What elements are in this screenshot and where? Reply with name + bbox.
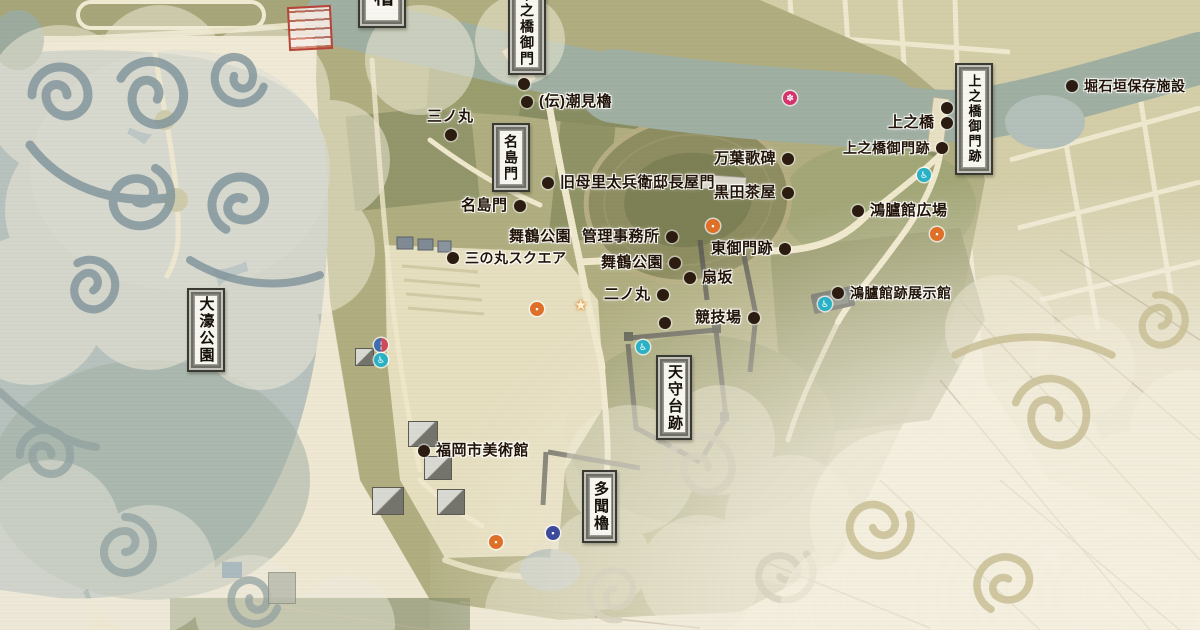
restroom-icon: ¦ (374, 338, 388, 352)
poi-label: 競技場 (695, 309, 742, 327)
poi-maizuru-koen-1: 舞鶴公園 (509, 228, 571, 246)
small-roof (355, 348, 374, 366)
poi-label: 堀石垣保存施設 (1084, 77, 1186, 95)
plaque-tamon-yagura: 多聞櫓 (582, 470, 617, 543)
marker-dot (514, 200, 526, 212)
poi-orange-icon: ▪ (489, 535, 503, 549)
poi-higashi-gomon-ato: 東御門跡 (711, 240, 791, 258)
poi-sannomaru: 三ノ丸 (427, 108, 474, 126)
plaque-shiomi-yagura: 潮見櫓 (358, 0, 406, 28)
poi-sannomaru-square: 三の丸スクエア (447, 249, 567, 267)
poi-kuroda-chaya: 黒田茶屋 (714, 184, 794, 202)
marker-dot (518, 78, 530, 90)
poi-fukuoka-bijutsukan: 福岡市美術館 (418, 442, 529, 460)
marker-dot (445, 129, 457, 141)
small-building (268, 572, 296, 604)
poi-label: 扇坂 (702, 269, 733, 287)
wheelchair-icon: ♿ (917, 168, 931, 182)
marker-dot (684, 272, 696, 284)
poi-kyogijo: 競技場 (695, 309, 760, 327)
poi-label: 舞鶴公園 (509, 228, 571, 246)
small-building (222, 562, 242, 578)
poi-najima-mon: 名島門 (461, 197, 526, 215)
poi-orange-icon: ▪ (706, 219, 720, 233)
poi-korokan-hiroba: 鴻臚館広場 (852, 202, 948, 220)
poi-label: 福岡市美術館 (436, 442, 529, 460)
poi-label: 万葉歌碑 (714, 150, 776, 168)
plaque-text: 天守台跡 (663, 362, 686, 433)
poi-label: 名島門 (461, 197, 508, 215)
poi-den-shiomi-yagura: (伝)潮見櫓 (521, 93, 612, 111)
marker-dot (657, 289, 669, 301)
marker-dot (1066, 80, 1078, 92)
poi-label: 三の丸スクエア (465, 249, 567, 267)
marker-dot (782, 187, 794, 199)
poi-ninomaru: 二ノ丸 (604, 286, 669, 304)
poi-kyu-mori-nagayamon: 旧母里太兵衛邸長屋門 (542, 174, 715, 192)
plaque-tenshudai-ato: 天守台跡 (656, 355, 692, 440)
icon-glyph: ★ (574, 297, 587, 314)
icon-glyph: ▪ (535, 305, 538, 314)
icon-glyph: ♿ (920, 171, 928, 180)
marker-dot (832, 287, 844, 299)
marker-dot (666, 231, 678, 243)
poi-maizuru-koen-2: 舞鶴公園 (601, 254, 681, 272)
icon-glyph: ♿ (639, 343, 647, 352)
poi-label: 上之橋御門跡 (843, 139, 930, 157)
shrine-building (287, 5, 333, 51)
plaque-shimonohashi-gomon: 下之橋御門 (508, 0, 546, 75)
wheelchair-icon: ♿ (374, 353, 388, 367)
poi-label: 旧母里太兵衛邸長屋門 (560, 174, 715, 192)
marker-dot (748, 312, 760, 324)
marker-dot (936, 142, 948, 154)
poi-label: 鴻臚館広場 (870, 202, 948, 220)
park-map: 潮見櫓 下之橋御門 名島門 上之橋御門跡 大濠公園 天守台跡 多聞櫓 (伝)潮見… (0, 0, 1200, 630)
poi-kaminohashi-gomon-ato: 上之橋御門跡 (843, 139, 948, 157)
wheelchair-icon: ♿ (818, 297, 832, 311)
icon-glyph: ♿ (821, 300, 829, 309)
plaque-text: 潮見櫓 (365, 0, 399, 21)
plaque-najima-mon: 名島門 (492, 123, 530, 192)
poi-label: 鴻臚館跡展示館 (850, 284, 952, 302)
plaque-text: 名島門 (499, 130, 523, 185)
poi-orange-icon: ▪ (530, 302, 544, 316)
museum-roof (372, 487, 404, 515)
marker-dot (779, 243, 791, 255)
poi-kanri-jimusho: 管理事務所 (582, 228, 678, 246)
marker-dot (941, 117, 953, 129)
poi-orange-icon: ▪ (930, 227, 944, 241)
icon-glyph: ♿ (377, 356, 385, 365)
icon-glyph: ▪ (935, 230, 938, 239)
poi-hori-ishigaki: 堀石垣保存施設 (1066, 77, 1186, 95)
poi-label: 管理事務所 (582, 228, 660, 246)
marker-dot (418, 445, 430, 457)
marker-dot (941, 102, 953, 114)
icon-glyph: ▪ (711, 222, 714, 231)
marker-dot (521, 96, 533, 108)
poi-ogizaka: 扇坂 (684, 269, 733, 287)
poi-label: 上之橋 (888, 114, 935, 132)
poi-blue-icon: ▪ (546, 526, 560, 540)
museum-roof (437, 489, 465, 515)
cherry-blossom-icon: ✽ (783, 91, 797, 105)
poi-label: (伝)潮見櫓 (539, 93, 612, 111)
plaque-ohori-koen: 大濠公園 (187, 288, 225, 372)
star-icon: ★ (574, 296, 587, 314)
poi-label: 舞鶴公園 (601, 254, 663, 272)
plaque-text: 下之橋御門 (515, 0, 539, 68)
plaque-text: 上之橋御門跡 (962, 70, 986, 168)
icon-glyph: ▪ (551, 529, 554, 538)
poi-korokan-tenjikan: 鴻臚館跡展示館 (832, 284, 952, 302)
marker-dot (659, 317, 671, 329)
plaque-text: 多聞櫓 (589, 477, 612, 536)
poi-kaminohashi: 上之橋 (888, 114, 953, 132)
marker-dot (782, 153, 794, 165)
wheelchair-icon: ♿ (636, 340, 650, 354)
marker-dot (669, 257, 681, 269)
icon-glyph: ▪ (494, 538, 497, 547)
icon-glyph: ¦ (380, 341, 382, 350)
poi-label: 二ノ丸 (604, 286, 651, 304)
marker-dot (852, 205, 864, 217)
poi-label: 三ノ丸 (427, 108, 474, 126)
poi-manyo-kahi: 万葉歌碑 (714, 150, 794, 168)
marker-dot (542, 177, 554, 189)
marker-dot (447, 252, 459, 264)
poi-label: 東御門跡 (711, 240, 773, 258)
icon-glyph: ✽ (786, 94, 794, 103)
plaque-text: 大濠公園 (194, 295, 218, 365)
poi-label: 黒田茶屋 (714, 184, 776, 202)
plaque-kaminohashi-gomon-ato: 上之橋御門跡 (955, 63, 993, 175)
